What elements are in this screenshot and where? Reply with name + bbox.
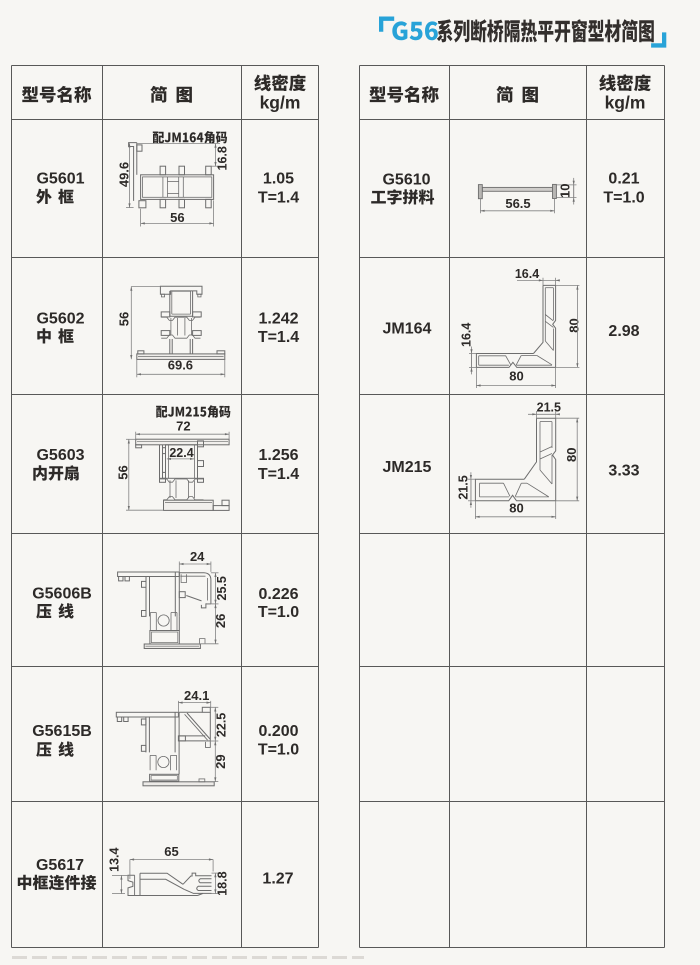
svg-text:T=1.0: T=1.0 — [603, 190, 644, 207]
svg-text:16.8: 16.8 — [215, 146, 229, 170]
svg-text:0.21: 0.21 — [608, 171, 639, 188]
svg-text:kg/m: kg/m — [260, 93, 301, 113]
svg-text:56: 56 — [116, 312, 131, 326]
svg-text:80: 80 — [509, 369, 523, 384]
svg-text:56: 56 — [170, 210, 184, 225]
svg-text:kg/m: kg/m — [605, 93, 646, 113]
svg-text:21.5: 21.5 — [537, 401, 561, 415]
svg-text:22.4: 22.4 — [169, 446, 193, 460]
svg-text:24: 24 — [190, 549, 205, 564]
svg-text:G5602: G5602 — [36, 311, 84, 328]
svg-text:72: 72 — [176, 418, 190, 433]
svg-text:13.4: 13.4 — [107, 847, 121, 871]
svg-text:G5617: G5617 — [36, 857, 84, 874]
svg-text:1.05: 1.05 — [263, 171, 294, 188]
svg-text:JM164: JM164 — [383, 321, 432, 338]
svg-text:18.8: 18.8 — [215, 871, 229, 895]
svg-text:26: 26 — [213, 614, 228, 628]
svg-text:65: 65 — [164, 844, 178, 859]
svg-text:22.5: 22.5 — [214, 713, 228, 737]
svg-text:1.27: 1.27 — [262, 870, 293, 887]
svg-text:1.256: 1.256 — [258, 447, 298, 464]
svg-text:T=1.4: T=1.4 — [258, 466, 299, 483]
svg-text:25.5: 25.5 — [215, 576, 229, 600]
svg-text:0.200: 0.200 — [258, 723, 298, 740]
svg-text:G5606B: G5606B — [32, 586, 92, 603]
svg-text:1.242: 1.242 — [258, 311, 298, 328]
svg-text:JM215: JM215 — [383, 459, 432, 476]
svg-text:3.33: 3.33 — [608, 463, 639, 480]
svg-text:G5603: G5603 — [36, 447, 84, 464]
svg-text:80: 80 — [566, 318, 581, 332]
svg-text:69.6: 69.6 — [168, 357, 193, 372]
svg-text:56: 56 — [116, 465, 131, 479]
svg-text:T=1.4: T=1.4 — [258, 190, 299, 207]
svg-text:10: 10 — [557, 184, 572, 198]
svg-text:2.98: 2.98 — [608, 323, 639, 340]
svg-text:T=1.4: T=1.4 — [258, 329, 299, 346]
svg-text:G5615B: G5615B — [32, 723, 92, 740]
svg-text:16.4: 16.4 — [515, 267, 539, 281]
svg-text:16.4: 16.4 — [460, 323, 474, 347]
svg-text:T=1.0: T=1.0 — [258, 604, 299, 621]
svg-text:80: 80 — [509, 500, 523, 515]
svg-text:G5610: G5610 — [382, 172, 430, 189]
svg-text:29: 29 — [213, 754, 228, 768]
svg-text:T=1.0: T=1.0 — [258, 742, 299, 759]
svg-text:24.1: 24.1 — [184, 688, 209, 703]
svg-text:56.5: 56.5 — [505, 196, 530, 211]
svg-text:G5601: G5601 — [36, 171, 84, 188]
svg-text:49.6: 49.6 — [116, 162, 131, 187]
svg-text:0.226: 0.226 — [258, 586, 298, 603]
